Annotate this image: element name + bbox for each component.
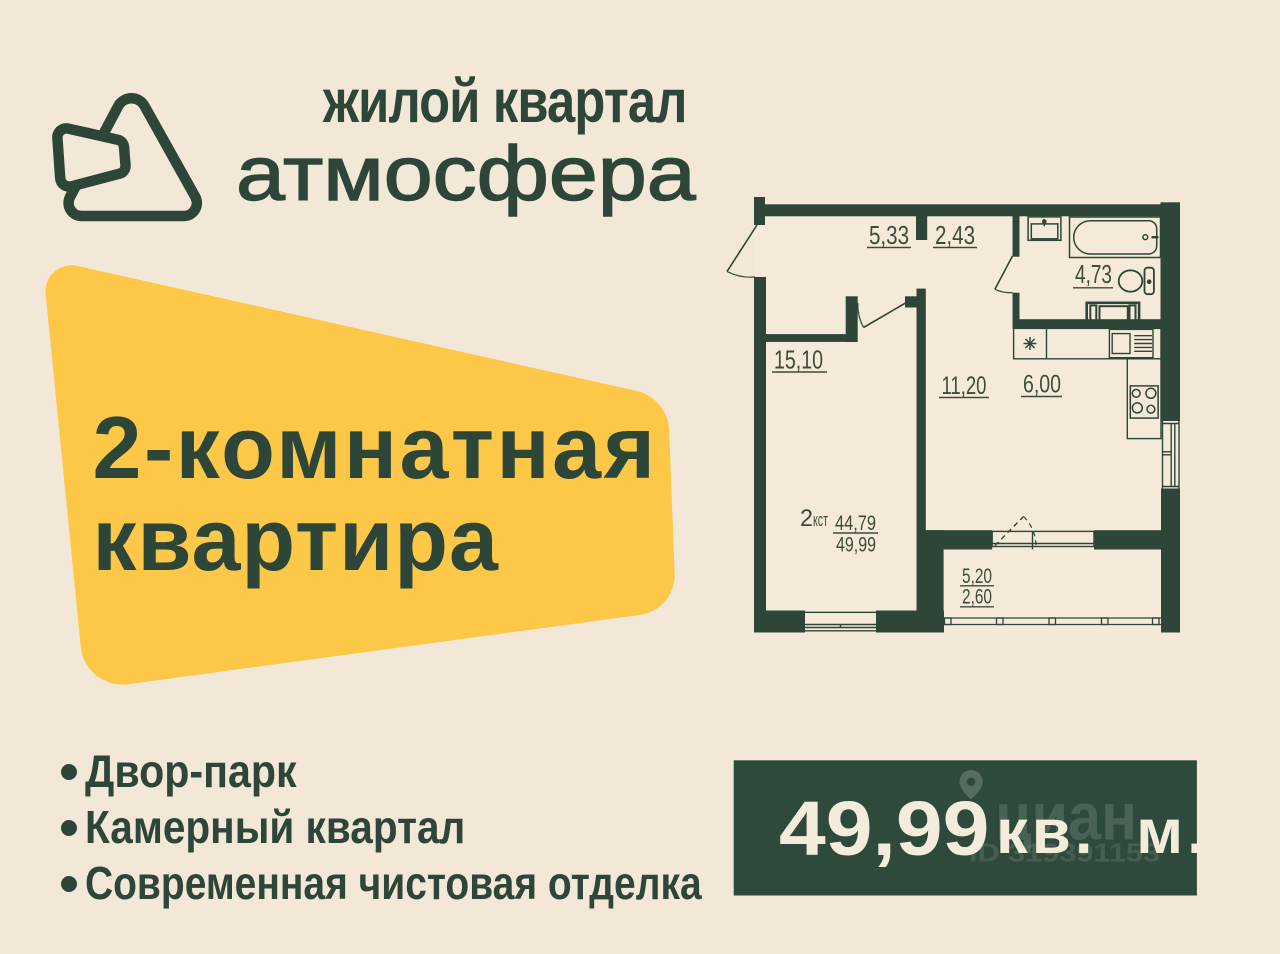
svg-text:44,79: 44,79 [835, 512, 876, 535]
svg-text:кст: кст [813, 510, 828, 530]
svg-text:49,99: 49,99 [836, 534, 876, 557]
svg-text:2,43: 2,43 [935, 220, 975, 250]
svg-text:2,60: 2,60 [962, 586, 992, 609]
svg-text:5,20: 5,20 [962, 565, 992, 588]
svg-text:15,10: 15,10 [774, 345, 823, 375]
svg-text:11,20: 11,20 [942, 372, 987, 400]
svg-text:5,33: 5,33 [869, 220, 909, 250]
svg-text:2: 2 [800, 505, 813, 532]
svg-text:6,00: 6,00 [1023, 370, 1061, 398]
svg-text:4,73: 4,73 [1075, 259, 1112, 289]
